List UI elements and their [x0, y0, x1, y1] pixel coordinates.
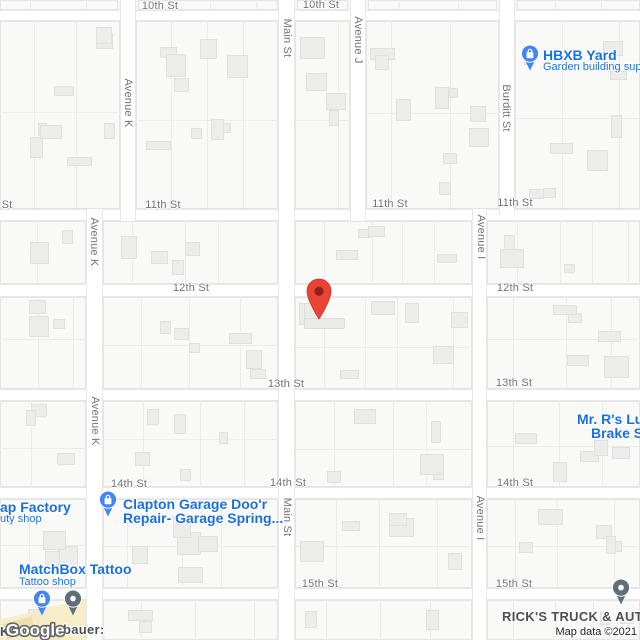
building: [538, 509, 563, 525]
parcel-line: [200, 401, 201, 487]
building: [128, 610, 153, 621]
building: [470, 106, 486, 122]
building: [340, 370, 359, 379]
building: [553, 305, 577, 315]
building: [567, 355, 589, 366]
building: [30, 242, 49, 264]
mr-rs-lube-brake-label-line2[interactable]: Brake S: [591, 425, 640, 441]
city-block: [295, 401, 472, 487]
street-label: 13th St: [496, 377, 532, 389]
parcel-line: [601, 0, 602, 10]
parcel-line: [254, 600, 255, 640]
building: [426, 610, 439, 630]
parcel-line: [244, 401, 245, 487]
building: [40, 125, 62, 139]
building: [515, 433, 537, 444]
parcel-line: [399, 0, 400, 10]
parcel-line: [450, 21, 451, 209]
building: [166, 54, 186, 77]
road-main-st: [278, 0, 295, 640]
parcel-line: [243, 21, 244, 209]
building: [306, 73, 327, 91]
street-label: St: [2, 199, 13, 211]
building: [172, 260, 184, 275]
building: [29, 300, 46, 314]
parcel-line: [380, 600, 381, 640]
map-attribution: Map data ©2021: [556, 626, 638, 638]
street-label: 15th St: [302, 578, 338, 590]
building: [354, 409, 376, 424]
parcel-line: [34, 21, 35, 209]
building: [300, 541, 324, 562]
building: [327, 471, 341, 483]
building: [305, 611, 317, 628]
matchbox-tattoo-label[interactable]: MatchBox Tattoo: [19, 561, 132, 577]
street-label: 10th St: [142, 0, 178, 12]
building: [229, 333, 252, 344]
building: [30, 137, 43, 158]
parcel-line: [0, 112, 120, 113]
parcel-line: [143, 401, 144, 487]
building: [443, 153, 457, 164]
building: [151, 251, 168, 264]
street-label: 15th St: [496, 578, 532, 590]
building: [200, 39, 217, 59]
building: [326, 93, 346, 110]
road-avenue-i: [472, 209, 487, 640]
parcel-line: [295, 449, 472, 450]
building: [96, 27, 112, 44]
building: [448, 553, 462, 570]
parcel-line: [393, 401, 394, 487]
parcel-line: [365, 297, 366, 389]
building: [53, 319, 65, 329]
street-label: Avenue J: [352, 16, 364, 63]
building: [104, 123, 115, 139]
building: [191, 128, 202, 139]
building: [431, 421, 441, 443]
building: [26, 410, 36, 426]
building: [198, 536, 218, 552]
building: [451, 312, 468, 328]
building: [435, 87, 449, 109]
building: [437, 254, 457, 263]
building: [405, 303, 419, 323]
city-block: [0, 21, 120, 209]
building: [62, 230, 73, 244]
building: [57, 453, 75, 465]
building: [612, 447, 630, 459]
matchbox-tattoo-category[interactable]: Tattoo shop: [19, 576, 76, 588]
parcel-line: [437, 499, 438, 588]
street-label: Avenue I: [475, 215, 487, 260]
building: [342, 521, 360, 531]
building: [500, 249, 524, 268]
parcel-line: [402, 221, 403, 284]
building: [178, 567, 203, 583]
building: [43, 531, 66, 550]
building: [180, 469, 191, 481]
building: [211, 119, 224, 140]
bauer-label-text[interactable]: bauer:: [63, 622, 105, 637]
building: [550, 143, 573, 154]
street-label: Main St: [281, 19, 293, 58]
parcel-line: [141, 297, 142, 389]
building: [174, 328, 189, 340]
building: [174, 414, 186, 434]
building: [375, 55, 389, 70]
building: [433, 346, 454, 364]
street-label: 10th St: [303, 0, 339, 11]
parcel-line: [256, 0, 257, 10]
parcel-line: [0, 339, 86, 340]
building: [219, 432, 228, 444]
building: [439, 182, 451, 195]
building: [250, 369, 266, 379]
building: [604, 356, 629, 378]
clapton-garage-label-line2[interactable]: Repair- Garage Spring...: [123, 510, 283, 526]
street-label: 11th St: [497, 197, 532, 209]
building: [246, 350, 262, 369]
parcel-line: [336, 499, 337, 588]
street-label: Burditt St: [500, 84, 512, 131]
building: [185, 242, 200, 256]
parcel-line: [379, 499, 380, 588]
parcel-line: [0, 448, 86, 449]
street-label: Avenue K: [89, 396, 101, 445]
building: [553, 462, 567, 482]
parcel-line: [555, 0, 556, 10]
hbxb-yard-category[interactable]: Garden building sup: [543, 61, 640, 73]
ap-factory-category[interactable]: uty shop: [0, 513, 42, 525]
parcel-line: [513, 297, 514, 389]
parcel-line: [136, 120, 278, 121]
parcel-line: [458, 0, 459, 10]
building: [368, 226, 385, 237]
street-label: Avenue I: [474, 496, 486, 541]
building: [189, 343, 200, 353]
building: [371, 301, 395, 315]
street-label: 11th St: [372, 198, 407, 210]
building: [147, 409, 159, 425]
parcel-line: [592, 221, 593, 284]
building: [420, 454, 444, 475]
building: [587, 150, 608, 171]
building: [449, 88, 458, 98]
building: [227, 55, 248, 78]
parcel-line: [628, 221, 629, 284]
destination-marker[interactable]: [306, 278, 332, 320]
hbxb-yard-pin-icon[interactable]: [520, 44, 540, 72]
tattoo-shop-pin-pin-icon[interactable]: [32, 589, 52, 617]
parcel-line: [210, 0, 211, 10]
building: [329, 110, 339, 126]
street-label: 14th St: [111, 478, 147, 490]
generic-poi-pin-pin-icon[interactable]: [63, 589, 83, 617]
street-label: 14th St: [270, 477, 306, 489]
parcel-line: [560, 221, 561, 284]
building: [300, 37, 325, 59]
parcel-line: [515, 499, 516, 588]
parcel-line: [30, 0, 31, 10]
parcel-line: [453, 297, 454, 389]
ricks-truck-auto-text[interactable]: RICK'S TRUCK & AUTO: [502, 609, 640, 624]
building: [564, 264, 575, 273]
building: [54, 86, 74, 96]
building: [469, 128, 489, 147]
building: [519, 542, 533, 553]
street-label: Avenue K: [122, 78, 134, 127]
google-logo[interactable]: Google: [4, 619, 66, 640]
building: [594, 440, 608, 456]
clapton-garage-pin-icon[interactable]: [98, 490, 118, 518]
building: [139, 621, 152, 633]
building: [336, 250, 358, 260]
building: [67, 157, 92, 166]
map-canvas[interactable]: 10th St10th StSt11th St11th St11th St12t…: [0, 0, 640, 640]
street-label: 12th St: [497, 282, 533, 294]
parcel-line: [397, 297, 398, 389]
building: [160, 321, 171, 334]
parcel-line: [73, 297, 74, 389]
city-block: [368, 0, 497, 10]
city-block: [517, 0, 640, 10]
parcel-line: [434, 221, 435, 284]
building: [611, 115, 622, 138]
street-label: 12th St: [173, 282, 209, 294]
parcel-line: [218, 221, 219, 284]
parcel-line: [513, 401, 514, 487]
building: [598, 331, 621, 342]
street-label: 13th St: [268, 378, 304, 390]
city-block: [295, 600, 472, 640]
building: [132, 546, 148, 564]
street-label: Avenue K: [88, 217, 100, 266]
building: [396, 99, 411, 121]
parcel-line: [195, 600, 196, 640]
parcel-line: [326, 600, 327, 640]
ricks-truck-auto-pin-icon[interactable]: [611, 578, 631, 606]
city-block: [0, 0, 118, 10]
building: [389, 513, 407, 526]
street-label: 14th St: [497, 477, 533, 489]
building: [174, 78, 189, 92]
road-10th-st: [0, 10, 640, 21]
google-logo-text: Google: [6, 621, 65, 640]
parcel-line: [103, 439, 278, 440]
parcel-line: [295, 120, 350, 121]
building: [135, 452, 150, 466]
building: [29, 316, 49, 337]
parcel-line: [86, 0, 87, 10]
parcel-line: [324, 221, 325, 284]
street-label: 11th St: [145, 199, 180, 211]
building: [121, 236, 137, 259]
building: [146, 141, 171, 150]
building: [606, 536, 616, 554]
building: [543, 188, 556, 198]
parcel-line: [76, 21, 77, 209]
